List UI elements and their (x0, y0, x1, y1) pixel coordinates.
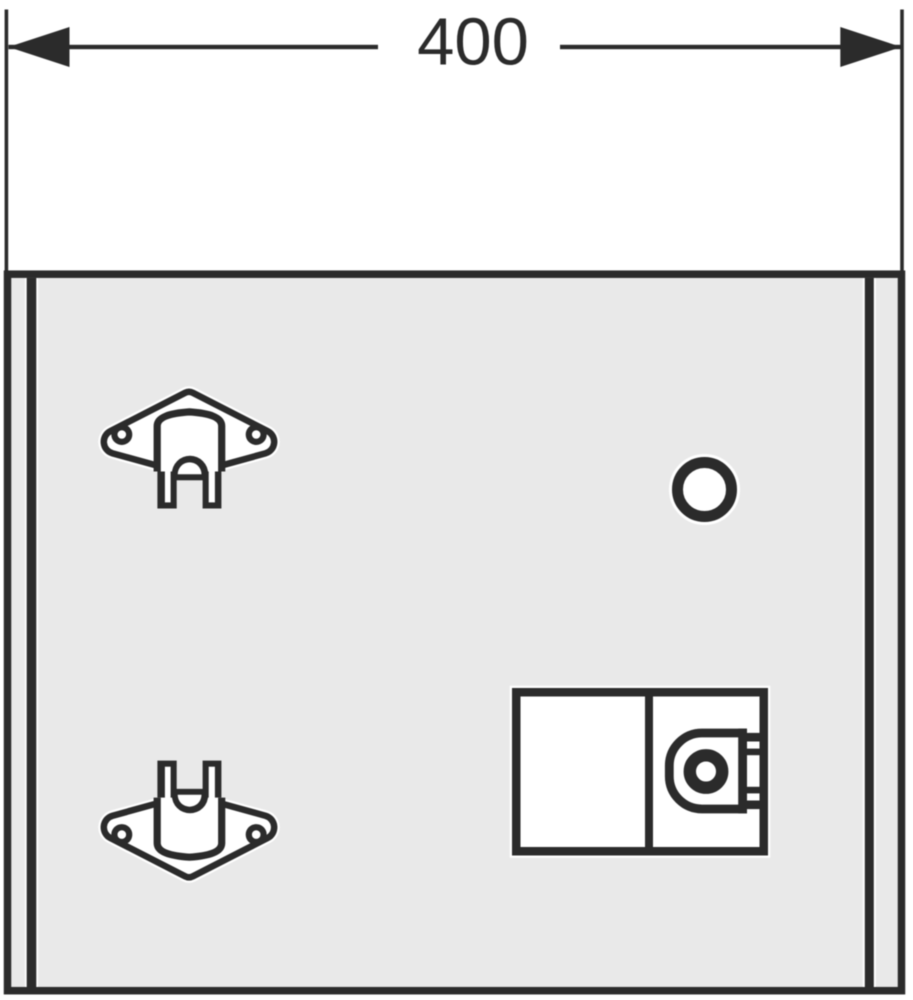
svg-text:400: 400 (417, 5, 529, 80)
